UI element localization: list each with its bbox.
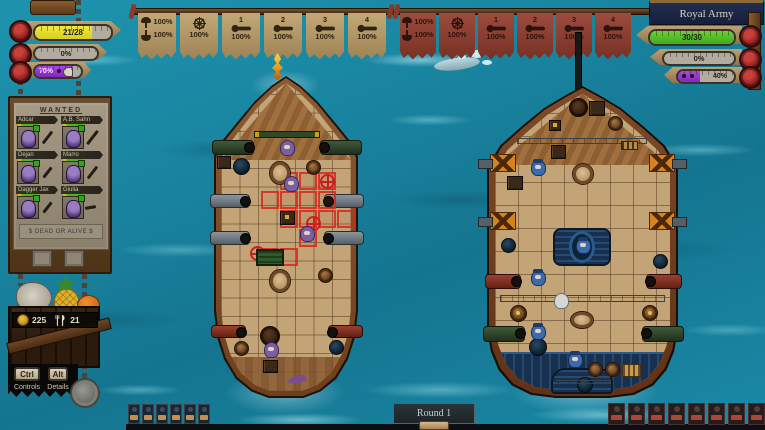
crew-sprite	[66, 130, 81, 148]
cannon-starboard-3[interactable]	[324, 231, 364, 245]
crew-orb-icon	[9, 20, 32, 43]
wooden-spool	[30, 0, 76, 15]
enemy-cannon-flag-2[interactable]: 2 100%	[517, 13, 553, 60]
crew-name: Giulia	[61, 186, 103, 194]
sail-up-icon	[141, 17, 151, 28]
crew-portrait	[17, 161, 39, 184]
enemy-crew-slot-icon[interactable]	[608, 403, 625, 425]
cannon-number: 2	[281, 16, 285, 24]
wheel-pct: 100%	[447, 31, 466, 39]
enemy-name: Royal Army	[679, 8, 733, 20]
cannonball-bucket	[329, 340, 344, 355]
cannon-starboard-1[interactable]	[320, 140, 362, 155]
gold-coin-icon	[17, 314, 29, 326]
cannon-pct: 100%	[525, 33, 544, 41]
player-crew-slot-icon[interactable]	[156, 404, 168, 424]
stern-station[interactable]	[551, 368, 613, 394]
move-cell[interactable]	[299, 191, 317, 209]
details-label: Details	[44, 384, 72, 391]
sail-boom	[254, 131, 320, 138]
crew-name: Dagger Jax	[16, 186, 58, 194]
crew-sprite	[66, 165, 81, 183]
enemy-cannon-flag-1[interactable]: 1 100%	[478, 13, 514, 60]
enemy-cannon-port-2[interactable]	[490, 212, 516, 230]
cannon-number: 3	[323, 16, 327, 24]
wheel-pct: 100%	[189, 31, 208, 39]
enemy-sails-bar: 0%	[662, 51, 736, 66]
crew-bar-value: 21/28	[63, 29, 83, 37]
crew-portrait	[62, 161, 84, 184]
barrel	[318, 268, 333, 283]
cargo-crate	[589, 101, 605, 116]
cannonball-bucket	[233, 158, 250, 175]
player-crew-slot-icon[interactable]	[170, 404, 182, 424]
cannon-port-1[interactable]	[212, 140, 254, 155]
round-button[interactable]	[419, 421, 449, 430]
weapon-icon	[42, 201, 52, 213]
weapon-icon	[42, 131, 54, 145]
enemy-crew-member[interactable]	[531, 324, 546, 340]
sail-up-pct: 100%	[414, 18, 433, 26]
ctrl-key-button[interactable]: Ctrl	[14, 367, 40, 381]
enemy-health-orb-icon	[739, 25, 762, 48]
crew-name: A.B. Sahn	[61, 116, 103, 124]
cannon-number: 4	[365, 16, 369, 24]
player-sails-flag[interactable]: 100% 100%	[138, 13, 176, 60]
alt-key-label: Alt	[53, 370, 64, 379]
barrel	[588, 362, 603, 377]
barrel	[510, 305, 527, 322]
food-amount: 21	[70, 315, 79, 325]
dead-or-alive-plate: $ DEAD OR ALIVE $	[19, 224, 103, 239]
move-cell[interactable]	[318, 191, 336, 209]
cannon-pct: 100%	[486, 33, 505, 41]
enemy-cannon-starboard-3[interactable]	[646, 274, 682, 289]
crew-member[interactable]	[284, 176, 299, 192]
weapon-icon	[86, 130, 99, 145]
game-screen: 21/28 0% 70% 100% 100% 100% 1 100% 2 100…	[0, 0, 765, 430]
crew-portrait	[62, 126, 84, 149]
enemy-loot-bar: 40%	[676, 69, 736, 84]
barrel	[306, 160, 321, 175]
sail-up-pct: 100%	[153, 18, 172, 26]
sail-down-pct: 100%	[414, 31, 433, 39]
enemy-crew-slot-icon[interactable]	[648, 403, 665, 425]
enemy-captain[interactable]	[576, 238, 591, 254]
ctrl-key-label: Ctrl	[20, 370, 34, 379]
cargo-crate	[551, 145, 566, 159]
enemy-cannon-port-1[interactable]	[490, 154, 516, 172]
ship-wheel-icon	[192, 16, 207, 31]
cannonball-bucket	[501, 238, 516, 253]
enemy-cannon-starboard-1[interactable]	[649, 154, 675, 172]
crew-card[interactable]: Marro	[61, 151, 103, 184]
sails-bar-value: 0%	[61, 50, 72, 58]
sail-down-pct: 100%	[153, 31, 172, 39]
enemy-cannon-port-4[interactable]	[483, 326, 525, 342]
crew-sprite	[66, 200, 81, 218]
cannon-pct: 100%	[273, 33, 292, 41]
enemy-crew-slot-icon[interactable]	[748, 403, 765, 425]
player-cannon-flag-3[interactable]: 3 100%	[306, 13, 344, 60]
metal-walkway	[500, 295, 665, 302]
price-tag-icon	[63, 67, 73, 77]
cannon-number: 1	[494, 16, 498, 24]
cannon-pct: 100%	[603, 33, 622, 41]
dead-or-alive-text: $ DEAD OR ALIVE $	[29, 229, 93, 235]
weapon-icon	[42, 166, 52, 178]
crew-sprite	[21, 130, 36, 148]
enemy-loot-orb-icon	[739, 66, 762, 89]
enemy-crew-slot-icon[interactable]	[628, 403, 645, 425]
player-wheel-flag[interactable]: 100%	[180, 13, 218, 60]
enemy-crew-slot-icon[interactable]	[688, 403, 705, 425]
enemy-wheel-flag[interactable]: 100%	[439, 13, 475, 60]
crew-card[interactable]: Dagger Jax	[16, 186, 58, 219]
crew-sprite	[21, 200, 36, 218]
player-crew-slot-icon[interactable]	[198, 404, 210, 424]
cargo-hold-door[interactable]	[256, 249, 284, 266]
crew-member[interactable]	[264, 342, 279, 358]
enemy-ship	[487, 86, 678, 398]
player-ship	[214, 76, 358, 398]
sail-down-icon	[141, 30, 151, 41]
poster-slot[interactable]	[64, 250, 84, 267]
cargo-crate	[507, 176, 523, 190]
player-cannon-flag-2[interactable]: 2 100%	[264, 13, 302, 60]
cannonball-bucket	[529, 338, 547, 356]
target-crosshair[interactable]	[320, 174, 335, 189]
move-cell[interactable]	[280, 191, 298, 209]
cannon-number: 1	[239, 16, 243, 24]
enemy-crew-member[interactable]	[568, 352, 583, 368]
enemy-cannon-flag-4[interactable]: 4 100%	[595, 13, 631, 60]
cannon-number: 4	[611, 16, 615, 24]
cannon-pct: 100%	[315, 33, 334, 41]
cannon-pct: 100%	[231, 33, 250, 41]
cannon-port-2[interactable]	[210, 194, 250, 208]
player-crew-slot-icon[interactable]	[142, 404, 154, 424]
alt-key-button[interactable]: Alt	[48, 367, 68, 381]
cannon-pct: 100%	[357, 33, 376, 41]
player-cannon-flag-1[interactable]: 1 100%	[222, 13, 260, 60]
cargo-crate	[280, 211, 295, 225]
player-crew-slot-icon[interactable]	[184, 404, 196, 424]
enemy-sails-flag[interactable]: 100% 100%	[400, 13, 436, 60]
gold-amount: 225	[32, 315, 46, 325]
stern-wheel-bar	[557, 380, 611, 384]
enemy-cannon-port-3[interactable]	[485, 274, 521, 289]
barrel	[605, 362, 620, 377]
cannon-number: 2	[533, 16, 537, 24]
bow-torch-flame	[271, 53, 284, 80]
controls-label: Controls	[10, 384, 44, 391]
gold-plaque	[622, 364, 641, 377]
stern-lantern-crate	[263, 360, 278, 373]
crew-card[interactable]: Giulia	[61, 186, 103, 219]
mast-base	[573, 164, 593, 184]
enemy-cannon-starboard-2[interactable]	[649, 212, 675, 230]
resource-bar: 225 21	[12, 312, 98, 328]
player-crew-bar: 21/28	[33, 24, 113, 41]
deck-hatch[interactable]	[571, 312, 593, 328]
cannon-number: 3	[572, 16, 576, 24]
weapon-rack	[621, 141, 638, 150]
enemy-crew-slot-icon[interactable]	[708, 403, 725, 425]
barrel	[642, 305, 658, 321]
cannon-port-4[interactable]	[211, 325, 246, 338]
medallion	[70, 378, 100, 408]
crew-name: Adcar	[16, 116, 58, 124]
enemy-health-bar: 30/30	[648, 29, 736, 46]
crew-name: Dejan	[16, 151, 58, 159]
enemy-cook[interactable]	[554, 293, 569, 309]
player-sails-bar: 0%	[33, 46, 99, 61]
barrel	[234, 341, 249, 356]
crew-sprite	[21, 165, 36, 183]
capstan	[569, 98, 588, 117]
cargo-crate	[217, 156, 231, 169]
enemy-cannon-starboard-4[interactable]	[642, 326, 684, 342]
move-cell[interactable]	[261, 191, 279, 209]
poster-title: WANTED	[14, 107, 108, 114]
weapon-icon	[85, 205, 96, 210]
crew-card[interactable]: Dejan	[16, 151, 58, 184]
player-crew-slot-icon[interactable]	[128, 404, 140, 424]
enemy-name-sign: Royal Army	[649, 0, 764, 25]
crew-card[interactable]: Adcar	[16, 116, 58, 149]
enemy-crew-slot-icon[interactable]	[668, 403, 685, 425]
player-loot-bar: 70%	[33, 64, 83, 79]
fork-knife-icon	[55, 314, 67, 327]
loot-bar-value: 70%	[39, 68, 53, 75]
cannon-port-3[interactable]	[210, 231, 250, 245]
crew-member[interactable]	[300, 226, 315, 242]
crew-portrait	[17, 126, 39, 149]
weapon-icon	[87, 166, 99, 180]
enemy-loot-value: 40%	[713, 73, 727, 80]
player-cannon-flag-4[interactable]: 4 100%	[348, 13, 386, 60]
ship-wheel-icon	[450, 16, 465, 31]
enemy-crew-member[interactable]	[531, 270, 546, 286]
crew-portrait	[17, 196, 39, 219]
loot-orb-icon	[9, 61, 32, 84]
cannonball-bucket	[653, 254, 668, 269]
barrel	[608, 116, 623, 131]
enemy-crew-slot-icon[interactable]	[728, 403, 745, 425]
deck-hatch[interactable]	[270, 270, 290, 292]
crew-portrait	[62, 196, 84, 219]
round-label: Round 1	[417, 408, 451, 419]
cargo-crate	[549, 120, 561, 131]
crew-card[interactable]: A.B. Sahn	[61, 116, 103, 149]
crew-name: Marro	[61, 151, 103, 159]
health-bar-value: 30/30	[682, 34, 702, 42]
mast-pole	[575, 32, 582, 92]
enemy-sails-value: 0%	[694, 55, 705, 63]
sail-down-icon	[402, 30, 412, 41]
cannon-starboard-4[interactable]	[328, 325, 363, 338]
enemy-cannon-flag-3[interactable]: 3 100%	[556, 13, 592, 60]
crew-member[interactable]	[280, 140, 295, 156]
enemy-crew-member[interactable]	[531, 160, 546, 176]
sail-up-icon	[402, 17, 412, 28]
poster-slot[interactable]	[32, 250, 52, 267]
move-cell[interactable]	[337, 210, 355, 228]
